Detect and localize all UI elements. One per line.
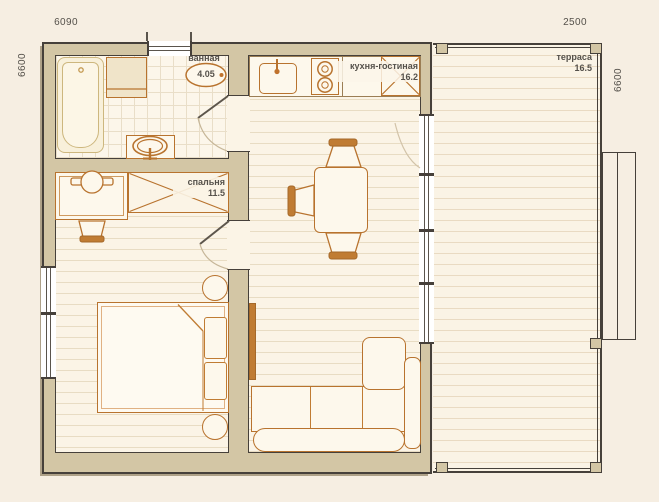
room-area-bathroom: 4.05 <box>186 69 226 80</box>
window-jamb-tick <box>190 32 192 41</box>
kitchen-sink <box>259 63 297 94</box>
terrace-steps <box>602 152 636 340</box>
terrace-post <box>590 462 602 473</box>
sofa-cushion-divider <box>310 387 311 431</box>
glazing-divider <box>419 173 434 176</box>
terrace-post <box>590 338 602 349</box>
terrace-post <box>436 43 448 54</box>
dimension-left: 6600 <box>6 47 38 83</box>
dressing-table <box>55 172 128 220</box>
dressing-table-inner-line <box>59 176 124 216</box>
dimension-top-left: 6090 <box>44 17 88 28</box>
sofa-armrest <box>404 357 421 449</box>
bedroom-door-opening <box>227 220 250 270</box>
nightstand <box>202 275 228 301</box>
sofa-chaise <box>362 337 406 390</box>
pillow <box>204 362 227 400</box>
room-label-kitchen: кухня-гостиная 16.2 <box>338 61 418 82</box>
pillow <box>204 317 227 359</box>
room-name-terrace: терраса <box>538 52 592 63</box>
room-label-terrace: терраса 16.5 <box>538 52 592 73</box>
room-label-bathroom: ванная <box>180 53 228 64</box>
dining-table <box>314 167 368 233</box>
sofa-front-band <box>253 428 405 452</box>
sofa-seat <box>251 386 405 432</box>
room-area-terrace: 16.5 <box>538 63 592 74</box>
tv-panel <box>249 303 256 380</box>
dimension-top-right: 2500 <box>553 17 597 28</box>
bathtub-inner <box>62 62 99 148</box>
glazing-divider <box>419 282 434 285</box>
room-name-kitchen: кухня-гостиная <box>338 61 418 72</box>
terrace-post <box>436 462 448 473</box>
washing-machine <box>106 57 147 98</box>
floor-plan-canvas: 6090 2500 6600 6600 <box>0 0 659 502</box>
window-mullion <box>41 312 56 315</box>
nightstand <box>202 414 228 440</box>
room-area-kitchen: 16.2 <box>338 72 418 83</box>
terrace-glazed-wall <box>419 114 434 344</box>
room-area-bedroom: 11.5 <box>173 188 225 199</box>
terrace-deck <box>433 43 602 473</box>
terrace-rail-inner-line <box>435 47 598 469</box>
stove <box>311 58 339 95</box>
bedroom-window <box>41 266 56 379</box>
washbasin-counter <box>126 135 175 159</box>
glazing-divider <box>419 229 434 232</box>
room-name-bedroom: спальня <box>173 177 225 188</box>
dimension-right: 6600 <box>602 62 634 98</box>
sofa-cushion-divider <box>362 387 363 431</box>
window-jamb-tick <box>146 32 148 41</box>
bathroom-door-opening <box>227 95 250 152</box>
room-label-bedroom: спальня 11.5 <box>173 177 225 198</box>
